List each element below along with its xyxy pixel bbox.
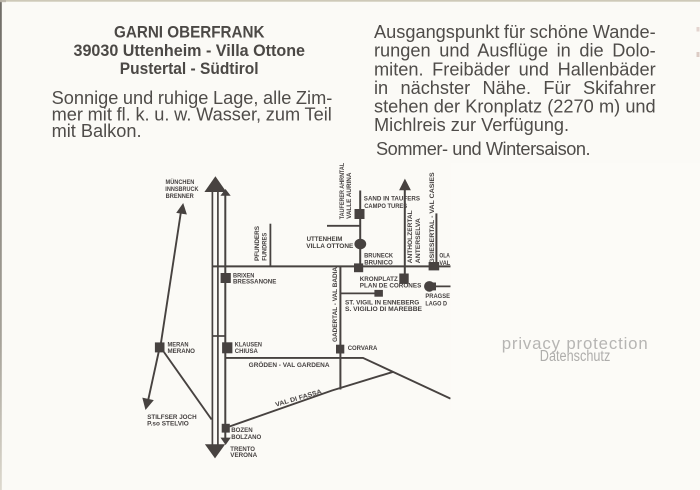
svg-text:OLA: OLA bbox=[439, 253, 450, 260]
svg-text:stehen der Kronplatz (2270 m): stehen der Kronplatz (2270 m) und bbox=[374, 97, 656, 117]
svg-text:miten. Freibäder und Hallenbäd: miten. Freibäder und Hallenbäder bbox=[374, 59, 656, 79]
svg-text:Michlreis zur Verfügung.: Michlreis zur Verfügung. bbox=[374, 115, 569, 135]
svg-text:VAL: VAL bbox=[439, 260, 450, 267]
svg-text:GSIESERTAL - VAL CASIES: GSIESERTAL - VAL CASIES bbox=[429, 171, 436, 263]
svg-text:BRUNICO: BRUNICO bbox=[364, 259, 393, 266]
svg-text:VILLA OTTONE: VILLA OTTONE bbox=[306, 243, 354, 250]
svg-text:ANTERSELVA: ANTERSELVA bbox=[415, 218, 422, 263]
svg-text:Datenschutz: Datenschutz bbox=[540, 348, 611, 365]
svg-text:TAUFERER AHRNTAL: TAUFERER AHRNTAL bbox=[339, 163, 346, 220]
svg-text:39030 Uttenheim - Villa Ottone: 39030 Uttenheim - Villa Ottone bbox=[74, 41, 306, 60]
svg-text:GADERTAL - VAL BADIA: GADERTAL - VAL BADIA bbox=[332, 267, 339, 342]
svg-text:Ausgangspunkt für schöne Wande: Ausgangspunkt für schöne Wande- bbox=[374, 22, 656, 42]
svg-text:VALLE AURINA: VALLE AURINA bbox=[346, 172, 353, 219]
svg-text:rungen und Ausflüge in die Dol: rungen und Ausflüge in die Dolo- bbox=[374, 41, 656, 61]
svg-text:BRENNER: BRENNER bbox=[166, 193, 195, 200]
svg-text:PRAGSE: PRAGSE bbox=[425, 293, 450, 300]
svg-text:MERANO: MERANO bbox=[168, 348, 196, 355]
svg-text:Sommer- und Wintersaison.: Sommer- und Wintersaison. bbox=[376, 139, 590, 159]
svg-text:UTTENHEIM: UTTENHEIM bbox=[307, 236, 343, 243]
svg-text:SAND IN TAUFERS: SAND IN TAUFERS bbox=[364, 196, 421, 203]
svg-text:PLAN DE CORONES: PLAN DE CORONES bbox=[360, 282, 422, 289]
svg-text:mit Balkon.: mit Balkon. bbox=[52, 121, 142, 141]
svg-text:ANTHOLZERTAL: ANTHOLZERTAL bbox=[407, 210, 414, 263]
svg-text:Pustertal - Südtirol: Pustertal - Südtirol bbox=[120, 59, 259, 78]
svg-text:BRESSANONE: BRESSANONE bbox=[233, 279, 277, 286]
svg-text:BOZEN: BOZEN bbox=[231, 427, 253, 434]
svg-text:CHIUSA: CHIUSA bbox=[235, 348, 258, 355]
svg-text:FUNDRES: FUNDRES bbox=[262, 232, 269, 261]
svg-text:BOLZANO: BOLZANO bbox=[231, 434, 261, 441]
svg-text:MÜNCHEN: MÜNCHEN bbox=[166, 177, 195, 186]
svg-text:CAMPO TURES: CAMPO TURES bbox=[364, 203, 408, 210]
svg-text:in nächster Nähe. Für Skifahre: in nächster Nähe. Für Skifahrer bbox=[374, 78, 656, 98]
svg-text:VERONA: VERONA bbox=[230, 452, 257, 459]
svg-text:P.so STELVIO: P.so STELVIO bbox=[147, 420, 189, 427]
svg-text:GRÖDEN - VAL GARDENA: GRÖDEN - VAL GARDENA bbox=[249, 360, 330, 369]
svg-text:CORVARA: CORVARA bbox=[348, 345, 378, 352]
svg-text:LAGO D: LAGO D bbox=[425, 301, 447, 308]
svg-text:PFUNDERS: PFUNDERS bbox=[254, 225, 261, 261]
svg-text:S. VIGILIO DI MAREBBE: S. VIGILIO DI MAREBBE bbox=[345, 306, 423, 313]
svg-text:GARNI OBERFRANK: GARNI OBERFRANK bbox=[114, 23, 265, 42]
